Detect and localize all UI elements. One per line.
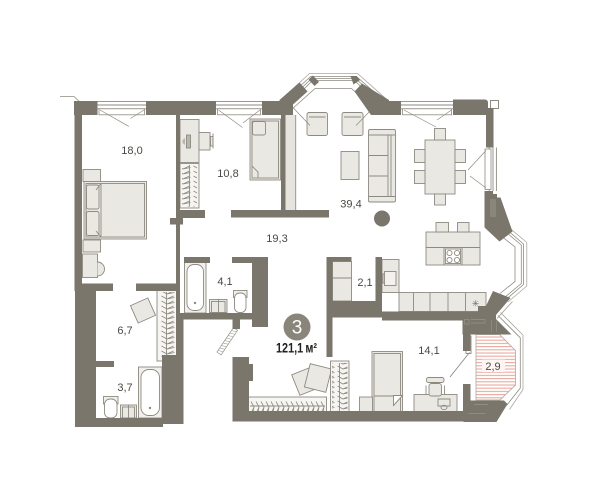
svg-text:19,3: 19,3 — [266, 233, 287, 245]
svg-text:3,7: 3,7 — [117, 382, 132, 394]
svg-text:2,1: 2,1 — [357, 277, 372, 289]
svg-text:6,7: 6,7 — [117, 325, 132, 337]
svg-text:4,1: 4,1 — [217, 276, 232, 288]
svg-text:18,0: 18,0 — [121, 145, 142, 157]
svg-text:3: 3 — [292, 318, 303, 339]
svg-text:14,1: 14,1 — [418, 345, 439, 357]
svg-text:10,8: 10,8 — [217, 168, 238, 180]
svg-text:39,4: 39,4 — [340, 199, 361, 211]
svg-text:121,1 м²: 121,1 м² — [276, 341, 317, 356]
svg-text:2,9: 2,9 — [485, 361, 500, 373]
